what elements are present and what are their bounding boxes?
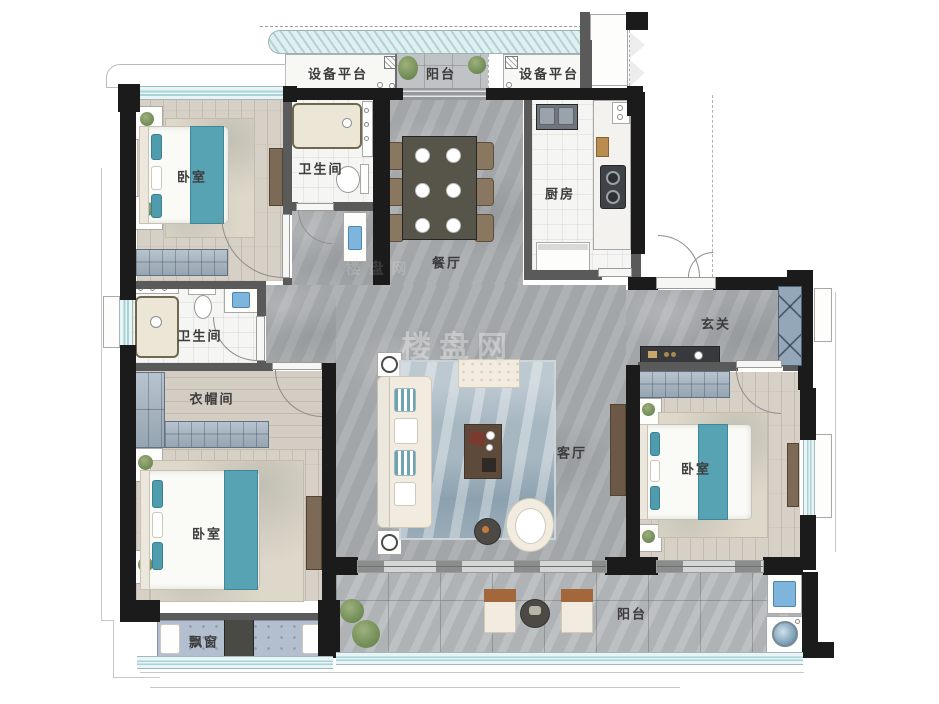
room-label-bedroom-1: 卧室	[177, 167, 207, 186]
bay-box-right-2	[814, 434, 832, 518]
floor-plan: 楼盘网 楼盘网 设备平台 阳台 设备平台 卧室 卫生间 餐厅 厨房 玄关 卫生间…	[0, 0, 939, 704]
wall	[626, 12, 648, 30]
room-label-bedroom-3: 卧室	[192, 524, 222, 543]
console-dial	[694, 351, 703, 360]
wall	[486, 88, 503, 100]
site-line-bottom2	[150, 687, 680, 688]
shaft	[590, 14, 628, 86]
plant	[340, 599, 364, 623]
louver-band	[268, 30, 598, 54]
lamp-icon	[381, 356, 398, 373]
boundary-dashed-right	[712, 95, 713, 277]
plate	[415, 218, 430, 233]
plate	[415, 183, 430, 198]
wall	[125, 281, 258, 289]
plate	[446, 148, 461, 163]
pillow	[160, 624, 180, 654]
lamp-icon	[381, 534, 398, 551]
watermark: 楼盘网	[345, 258, 414, 279]
wall	[322, 363, 336, 601]
wall	[336, 557, 358, 575]
tv-console	[610, 404, 626, 496]
wall	[631, 92, 645, 254]
plant	[352, 620, 380, 648]
room-label-balcony-bottom: 阳台	[617, 604, 647, 623]
console-knob	[664, 352, 669, 357]
pillow	[152, 480, 163, 508]
shelf-knob	[364, 108, 369, 113]
bay-sill	[157, 613, 323, 620]
pillow	[151, 134, 162, 160]
room-label-entry: 玄关	[701, 314, 731, 333]
door-bedroom-2	[736, 360, 782, 368]
window-balcony	[336, 652, 803, 665]
wall	[626, 365, 640, 570]
dining-chair	[474, 214, 494, 242]
cabinet-knob	[617, 105, 623, 111]
site-line-step-h2	[113, 677, 160, 678]
cushion	[394, 418, 418, 444]
sink-bowl	[539, 107, 555, 125]
toilet-tank	[360, 164, 369, 194]
shower-drain-icon	[150, 316, 162, 328]
wall	[120, 345, 136, 622]
room-label-balcony-top: 阳台	[426, 64, 456, 83]
roofline-dashed	[260, 26, 612, 27]
cutting-board	[596, 137, 609, 157]
room-label-equip-right: 设备平台	[519, 64, 579, 83]
plant	[468, 56, 486, 74]
chair-headrest	[561, 589, 593, 602]
room-label-bedroom-2: 卧室	[681, 459, 711, 478]
pillow	[650, 432, 660, 456]
entry-wardrobe	[778, 286, 802, 366]
plate	[446, 218, 461, 233]
washer-drum-icon	[772, 621, 798, 647]
shelf-knob	[364, 136, 369, 141]
site-line-right	[835, 292, 836, 552]
wardrobe	[135, 249, 228, 276]
cushion	[394, 482, 416, 506]
room-label-cloakroom: 衣帽间	[189, 389, 234, 408]
washer-dial	[795, 619, 800, 624]
wall	[120, 84, 136, 300]
window-bedroom-1	[140, 86, 283, 100]
window-bedroom-2-east	[803, 440, 815, 515]
bathtub	[292, 103, 362, 149]
room-label-bay-window: 飘窗	[189, 632, 219, 651]
plate	[415, 148, 430, 163]
pillow	[151, 166, 162, 190]
room-label-living: 客厅	[557, 443, 587, 462]
wall	[283, 100, 292, 215]
sink	[348, 226, 362, 250]
dining-chair	[474, 178, 494, 206]
wardrobe	[134, 372, 165, 448]
dining-table	[402, 136, 477, 240]
tray	[486, 431, 495, 440]
wardrobe	[638, 371, 730, 398]
counter-strip	[538, 244, 588, 250]
wall	[628, 277, 658, 290]
tray	[486, 444, 493, 451]
headboard	[140, 470, 150, 590]
cushion	[394, 388, 416, 412]
watermark: 楼盘网	[401, 322, 515, 366]
chair-headrest	[484, 589, 516, 602]
table-box	[482, 458, 496, 472]
wall	[627, 86, 643, 116]
plant	[140, 112, 154, 126]
room-label-bath-2: 卫生间	[177, 326, 222, 345]
wall	[802, 642, 834, 658]
room-label-kitchen: 厨房	[545, 184, 575, 203]
site-line-left	[101, 168, 102, 620]
plant	[642, 403, 655, 416]
drain-icon	[505, 56, 518, 69]
door-cloakroom	[272, 362, 322, 370]
site-line-bottom	[140, 672, 804, 673]
toilet-tank	[188, 288, 216, 295]
wall	[605, 557, 658, 575]
site-line-step-v	[113, 620, 114, 678]
wardrobe	[164, 421, 269, 448]
room-label-dining: 餐厅	[432, 253, 462, 272]
shelf-knob	[364, 122, 369, 127]
plate	[446, 183, 461, 198]
pot-flower	[482, 526, 489, 533]
plant	[642, 530, 655, 543]
burner-icon	[606, 190, 620, 204]
wall	[503, 88, 640, 100]
floor-hall-left	[266, 285, 336, 365]
pillow	[151, 194, 162, 218]
armchair-cushion	[515, 508, 546, 544]
wall	[373, 93, 390, 285]
sink-bowl	[558, 107, 574, 125]
dining-chair	[474, 142, 494, 170]
wall	[136, 363, 273, 371]
pillow	[152, 512, 163, 538]
bed-runner	[224, 470, 258, 590]
door-bath-2	[256, 316, 265, 361]
wall	[318, 600, 340, 658]
burner-icon	[606, 171, 620, 185]
shaft-door-upper	[630, 32, 645, 58]
pillow	[650, 460, 660, 482]
window-dining	[403, 88, 486, 100]
dresser	[306, 496, 322, 570]
cushion	[394, 450, 416, 476]
plant	[138, 455, 153, 470]
wall	[631, 252, 641, 278]
bay-box-left	[103, 296, 120, 348]
toilet	[194, 295, 212, 319]
door-bedroom-1	[282, 214, 290, 278]
wall	[333, 202, 373, 211]
window-bay	[137, 656, 333, 669]
door-kitchen	[598, 268, 632, 277]
headboard	[139, 126, 149, 224]
wall	[524, 270, 602, 280]
room-label-bath-1: 卫生间	[298, 159, 343, 178]
wall	[136, 600, 160, 622]
wall	[763, 557, 803, 575]
pillow	[152, 542, 163, 570]
entry-door-threshold	[656, 277, 716, 289]
plant	[398, 56, 418, 80]
wall	[283, 278, 292, 285]
console-tray	[648, 351, 657, 358]
sink	[232, 292, 250, 308]
table-plate	[529, 606, 541, 615]
window-bedroom-2-south	[656, 560, 764, 573]
wall	[638, 362, 738, 371]
bay-tray	[224, 616, 254, 660]
room-label-equip-left: 设备平台	[308, 64, 368, 83]
sink	[773, 581, 796, 607]
slider-living-balcony	[357, 560, 607, 573]
window-bath-2	[119, 300, 133, 345]
shaft-wall	[580, 12, 590, 90]
tv-panel	[787, 443, 799, 507]
wall	[524, 100, 532, 278]
cabinet-knob	[617, 114, 623, 120]
bay-box-right-1	[814, 288, 832, 342]
drain-icon	[342, 118, 352, 128]
pillow	[650, 486, 660, 510]
wall	[257, 281, 266, 316]
dresser	[269, 148, 283, 206]
shaft-door-lower	[630, 60, 645, 86]
wall	[800, 388, 816, 440]
sofa-back	[377, 376, 390, 528]
console-knob	[671, 352, 676, 357]
